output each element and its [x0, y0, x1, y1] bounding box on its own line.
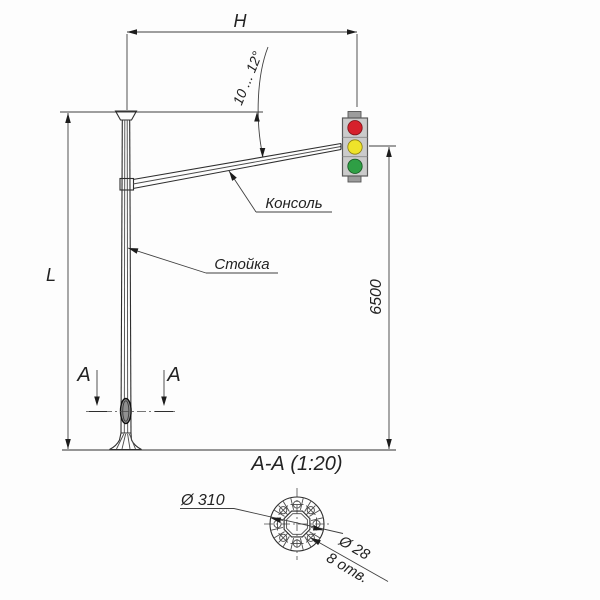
pole-hatch-oval: [121, 399, 132, 424]
traffic-light-top-tab: [348, 112, 361, 119]
section-marker-right: А: [166, 364, 180, 386]
callout-post-label: Стойка: [214, 256, 269, 273]
pole-base-flare: [110, 433, 142, 450]
dimension-angle: 10 ... 12°: [229, 47, 268, 158]
callout-console-label: Консоль: [265, 195, 322, 212]
traffic-light-red-lamp: [348, 121, 362, 135]
pole: [110, 111, 142, 450]
flange-section-view: Ø 310 Ø 28 8 отв.: [180, 488, 388, 587]
dimension-6500: 6500: [368, 146, 396, 449]
leader-hole-diameter: Ø 28 8 отв.: [311, 532, 388, 587]
traffic-light-yellow-lamp: [348, 140, 362, 154]
dim-label-6500: 6500: [368, 279, 385, 315]
callout-post: Стойка: [128, 248, 278, 273]
section-marker-left: А: [76, 364, 90, 386]
dim-label-h: H: [234, 11, 248, 31]
technical-drawing-traffic-light-pole: H L 10 ... 12°: [0, 0, 600, 600]
section-title: А-А (1:20): [250, 453, 342, 475]
traffic-light-green-lamp: [348, 159, 362, 173]
flange-diameter-label: Ø 310: [180, 492, 225, 509]
console-arm: [120, 144, 341, 191]
traffic-light-bottom-tab: [348, 176, 361, 182]
drawing-svg: H L 10 ... 12°: [0, 0, 600, 600]
dim-label-l: L: [46, 265, 56, 285]
traffic-light: [343, 112, 368, 183]
callout-console: Консоль: [229, 171, 332, 212]
